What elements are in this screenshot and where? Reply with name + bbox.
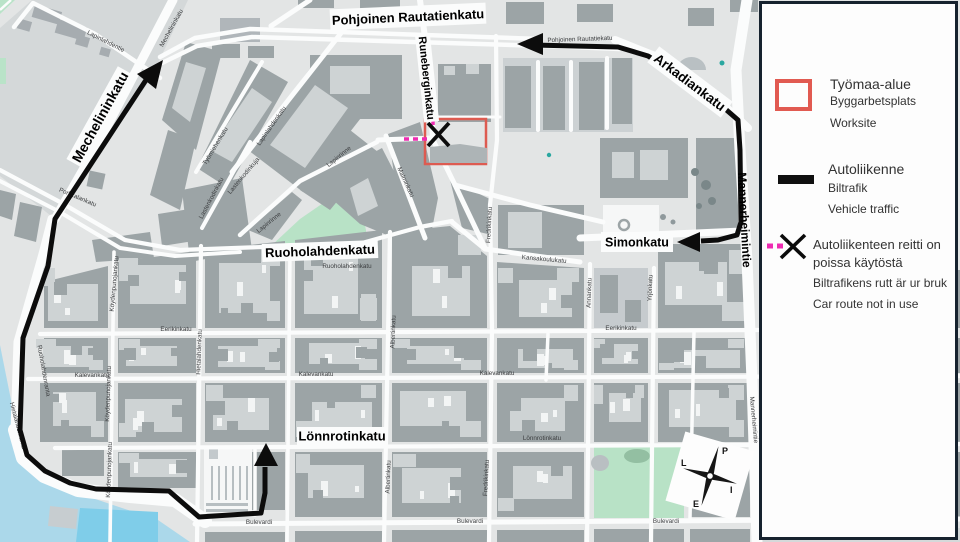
svg-text:Albertinkatu: Albertinkatu — [389, 315, 397, 349]
svg-text:Ruoholahdenkatu: Ruoholahdenkatu — [322, 263, 372, 270]
svg-text:Eerikinkatu: Eerikinkatu — [605, 325, 637, 332]
svg-text:Lönnrotinkatu: Lönnrotinkatu — [523, 435, 562, 442]
svg-text:I: I — [730, 485, 733, 495]
svg-text:Eerikinkatu: Eerikinkatu — [160, 326, 192, 333]
svg-text:Lönnrotinkatu: Lönnrotinkatu — [298, 429, 385, 444]
svg-text:L: L — [681, 458, 687, 468]
svg-text:E: E — [693, 499, 699, 509]
svg-text:Simonkatu: Simonkatu — [605, 236, 669, 250]
svg-text:Bulevardi: Bulevardi — [457, 518, 483, 525]
svg-text:Bulevardi: Bulevardi — [653, 518, 679, 525]
svg-text:Yrjönkatu: Yrjönkatu — [647, 274, 655, 301]
svg-text:P: P — [722, 446, 728, 456]
svg-text:Kalevankatu: Kalevankatu — [480, 370, 515, 377]
svg-text:Annankatu: Annankatu — [585, 277, 593, 308]
svg-text:Kalevankatu: Kalevankatu — [299, 371, 334, 378]
svg-text:Kalevankatu: Kalevankatu — [75, 372, 110, 379]
svg-text:Bulevardi: Bulevardi — [246, 519, 272, 526]
svg-text:Albertinkatu: Albertinkatu — [384, 460, 392, 494]
